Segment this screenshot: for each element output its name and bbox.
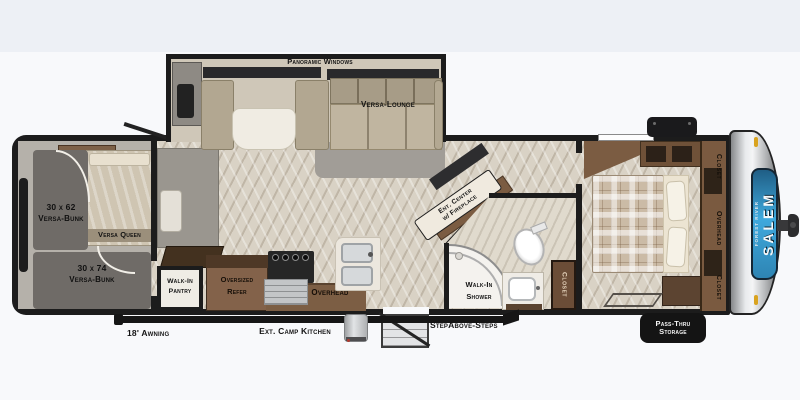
bed-pillow-2 xyxy=(666,226,688,267)
stove-burner-4 xyxy=(302,254,309,261)
steps-label: StepAbove-Steps xyxy=(430,321,522,331)
bedroom-top-cabinet-door-2 xyxy=(672,146,692,162)
dinette-table xyxy=(232,108,296,150)
walk-in-pantry-label-1: Walk-In xyxy=(158,278,202,286)
bedroom-closet-top-label: Closet xyxy=(706,145,722,189)
versa-queen-pillow xyxy=(89,153,150,166)
pass-thru-badge: Pass-Thru Storage xyxy=(640,313,706,343)
roof-box-screw-1 xyxy=(653,122,656,125)
refrigerator-lid xyxy=(206,255,268,268)
vanity-shelf xyxy=(506,304,542,310)
clearance-light-bottom xyxy=(754,295,758,305)
background-band xyxy=(0,0,800,52)
dinette-bench-left xyxy=(201,80,234,150)
shower-label-2: Shower xyxy=(448,293,510,301)
roof-box xyxy=(647,117,697,137)
forest-river-label: Forest River xyxy=(754,201,759,246)
stove-burner-3 xyxy=(292,254,299,261)
shower-head xyxy=(455,252,463,260)
awning-end-left xyxy=(114,314,123,325)
versa-lounge-armrest xyxy=(434,80,443,150)
panoramic-windows-label: Panoramic Windows xyxy=(250,58,390,66)
stove-burner-1 xyxy=(272,254,279,261)
bath-closet: Closet xyxy=(551,260,576,310)
awning-label: 18' Awning xyxy=(127,329,207,339)
roof-box-screw-2 xyxy=(688,122,691,125)
hitch-knob xyxy=(790,222,796,228)
versa-lounge-seat xyxy=(330,104,442,150)
bedroom-closet-bottom-label: Closet xyxy=(706,266,722,310)
vanity-basin xyxy=(508,277,536,301)
slideout-wardrobe-window xyxy=(177,84,194,118)
salem-logo-text: Salem xyxy=(760,192,776,256)
camp-kitchen-label: Ext. Camp Kitchen xyxy=(250,327,340,337)
bedroom-wall-bottom-seg xyxy=(576,184,582,310)
bath-closet-label: Closet xyxy=(560,272,568,297)
stove-burner-2 xyxy=(282,254,289,261)
bed-pillow-1 xyxy=(666,180,688,221)
floorplan-canvas: Versa Queen 30 x 62 Versa-Bunk 30 x 74 V… xyxy=(0,0,800,400)
walk-in-pantry-label-2: Pantry xyxy=(158,288,202,296)
bunk-bottom-name-label: Versa-Bunk xyxy=(48,276,136,285)
bedroom-overhead-label: Overhead xyxy=(706,198,722,258)
camp-kitchen-grill-knob xyxy=(347,339,350,342)
bedroom-wall-top-seg xyxy=(576,141,582,153)
vanity-faucet xyxy=(536,286,540,290)
versa-queen-label: Versa Queen xyxy=(86,231,153,239)
refer-label-2: Refer xyxy=(206,288,268,296)
shower-label-1: Walk-In xyxy=(448,281,510,289)
rear-window xyxy=(19,178,28,272)
clearance-light-top xyxy=(754,137,758,147)
floor-rug-outline xyxy=(603,293,663,307)
bunk-top-size-label: 30 x 62 xyxy=(28,203,94,213)
slideout-window-left xyxy=(203,67,321,78)
interior-steps-cushion xyxy=(160,190,182,232)
sink-basin-2 xyxy=(341,266,373,286)
bedroom-window xyxy=(598,134,654,141)
sink-faucet xyxy=(368,252,373,257)
versa-lounge-label: Versa-Lounge xyxy=(342,101,434,110)
bunk-bottom-size-label: 30 x 74 xyxy=(48,264,136,274)
salem-badge: Forest River Salem xyxy=(751,168,778,280)
pass-thru-label-2: Storage xyxy=(659,328,687,336)
dinette-bench-right xyxy=(295,80,329,150)
bathroom-top-wall xyxy=(489,193,578,198)
bed-plaid-blanket xyxy=(592,175,664,273)
bedroom-top-cabinet-door-1 xyxy=(646,146,666,162)
bunk-top-name-label: Versa-Bunk xyxy=(28,215,94,224)
refer-label-1: Oversized xyxy=(206,276,268,284)
